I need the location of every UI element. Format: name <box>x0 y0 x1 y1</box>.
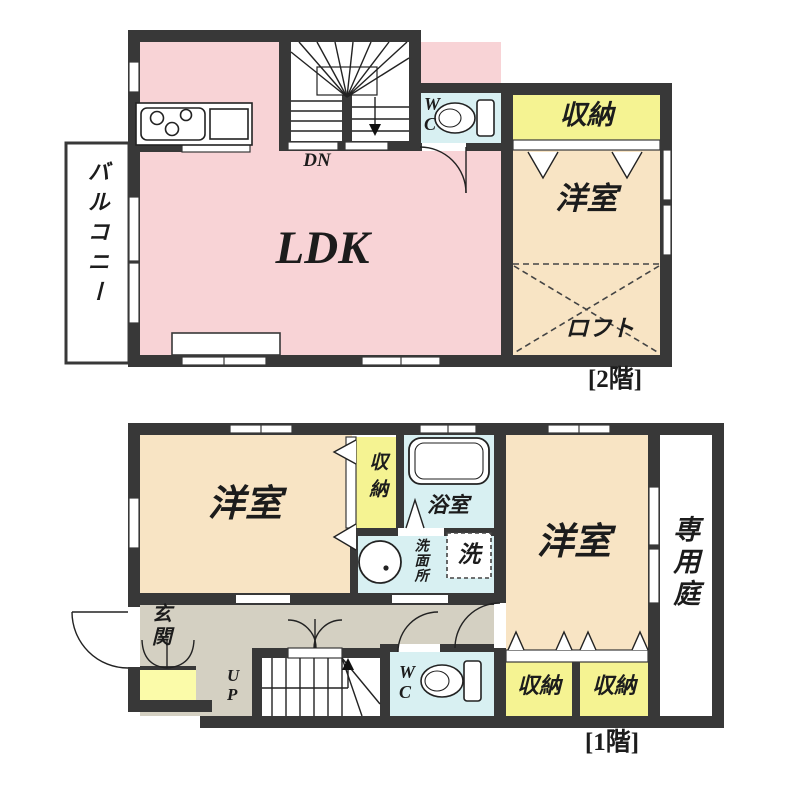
entrance-door-swing <box>72 612 128 668</box>
floor2-caption: [2階] <box>553 366 677 394</box>
wc-label-1f: W C <box>399 662 415 702</box>
stairs-dn-label: DN <box>292 150 342 171</box>
balcony-label: バルコニー <box>84 160 109 310</box>
bedroom-left-label-1f: 洋室 <box>140 484 350 525</box>
washroom-label: 洗面所 <box>412 538 428 583</box>
closet-a-label: 収納 <box>506 674 572 699</box>
wc-label-2f: W C <box>424 94 440 134</box>
loft-label: ロフト <box>543 316 657 342</box>
burner-icon <box>181 110 192 121</box>
bathtub-icon <box>409 438 489 484</box>
stairwell-1f <box>262 658 380 716</box>
floor-plan: LDK DN W C 収納 洋室 ロフト バルコニー [2階] 洋室 洋室 収納… <box>0 0 800 800</box>
stairs-up-label: U P <box>227 666 239 704</box>
washbasin-icon <box>359 541 401 583</box>
ldk-label: LDK <box>230 222 415 275</box>
entrance-label: 玄関 <box>148 603 170 649</box>
closet-b-label: 収納 <box>580 674 648 699</box>
closet-side-label: 収納 <box>366 452 387 506</box>
closet-label-2f: 収納 <box>515 100 658 130</box>
burner-icon <box>151 112 164 125</box>
kitchen-sink <box>210 109 248 139</box>
floor1-caption: [1階] <box>550 729 674 757</box>
washer-label: 洗 <box>448 542 490 568</box>
toilet-1f-icon <box>421 661 481 701</box>
toilet-2f-icon <box>435 100 494 136</box>
garden-label: 専用庭 <box>669 515 699 611</box>
bedroom-right-label-1f: 洋室 <box>498 522 650 563</box>
kitchen-counter <box>136 103 252 145</box>
entry-closet <box>140 670 196 700</box>
burner-icon <box>166 123 179 136</box>
bedroom-label-2f: 洋室 <box>515 182 658 217</box>
bathroom-label: 浴室 <box>402 494 494 518</box>
